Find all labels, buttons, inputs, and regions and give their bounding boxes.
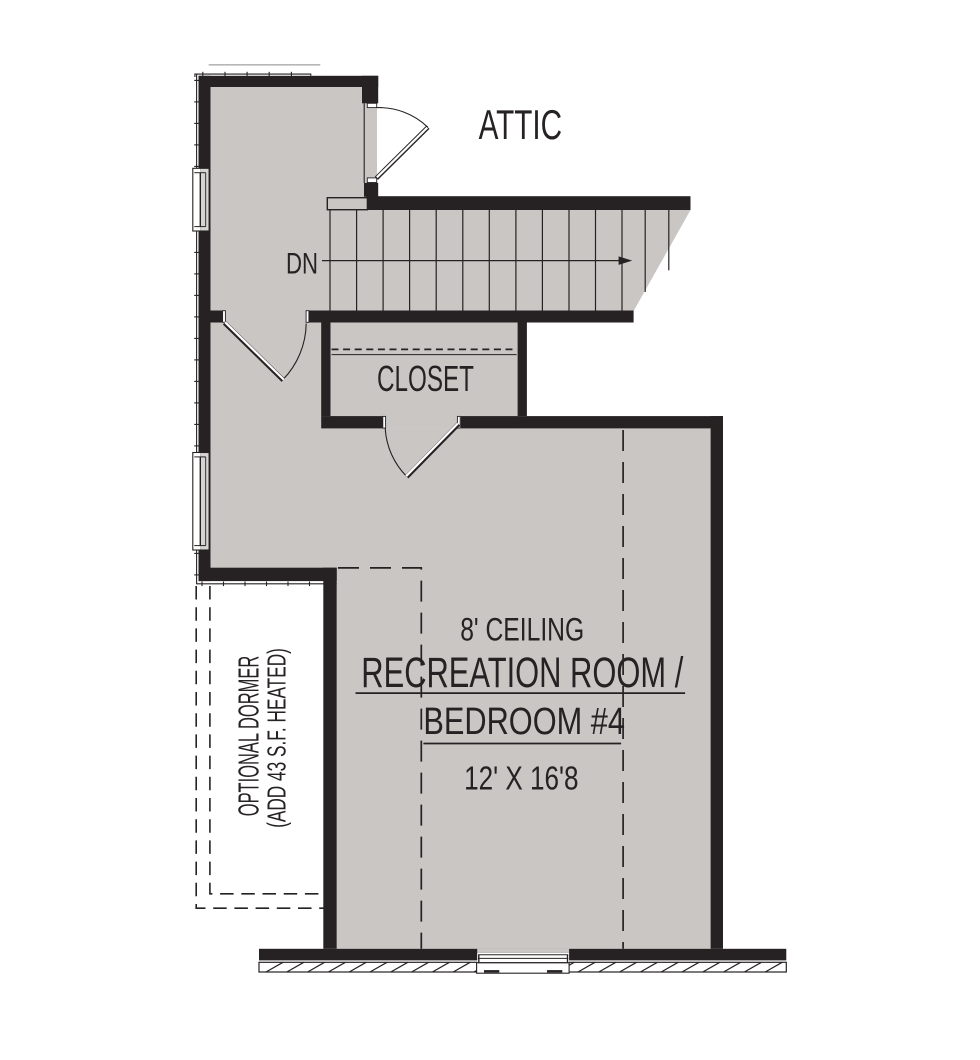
svg-text:BEDROOM #4: BEDROOM #4 xyxy=(423,701,625,743)
svg-text:DN: DN xyxy=(286,247,318,280)
svg-text:RECREATION ROOM /: RECREATION ROOM / xyxy=(361,650,683,697)
svg-text:(ADD 43 S.F. HEATED): (ADD 43 S.F. HEATED) xyxy=(261,648,291,828)
svg-text:8' CEILING: 8' CEILING xyxy=(460,612,584,648)
svg-text:ATTIC: ATTIC xyxy=(479,101,562,148)
svg-text:12' X 16'8: 12' X 16'8 xyxy=(464,760,578,797)
svg-text:CLOSET: CLOSET xyxy=(377,358,474,399)
